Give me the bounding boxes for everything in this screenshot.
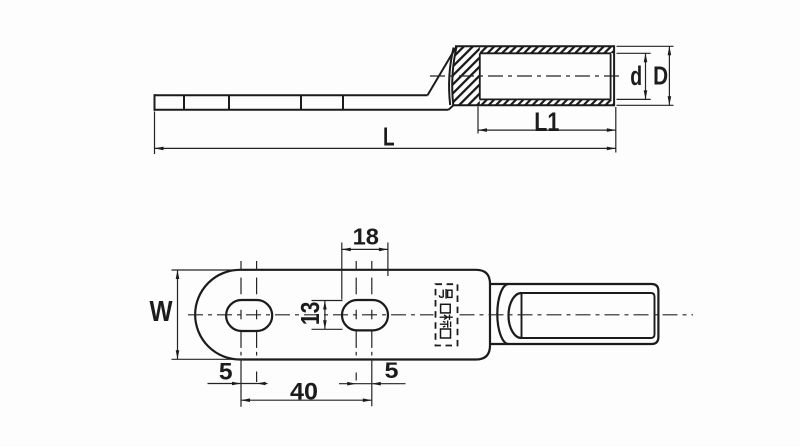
svg-text:18: 18 — [353, 224, 379, 250]
svg-text:5: 5 — [385, 358, 399, 383]
svg-text:13: 13 — [295, 302, 325, 326]
svg-text:L1: L1 — [534, 107, 559, 137]
svg-text:5: 5 — [219, 359, 233, 386]
svg-text:40: 40 — [290, 378, 318, 405]
svg-text:W: W — [150, 296, 174, 328]
svg-text:D: D — [653, 62, 668, 90]
svg-text:L: L — [383, 122, 395, 152]
svg-text:d: d — [630, 61, 642, 91]
